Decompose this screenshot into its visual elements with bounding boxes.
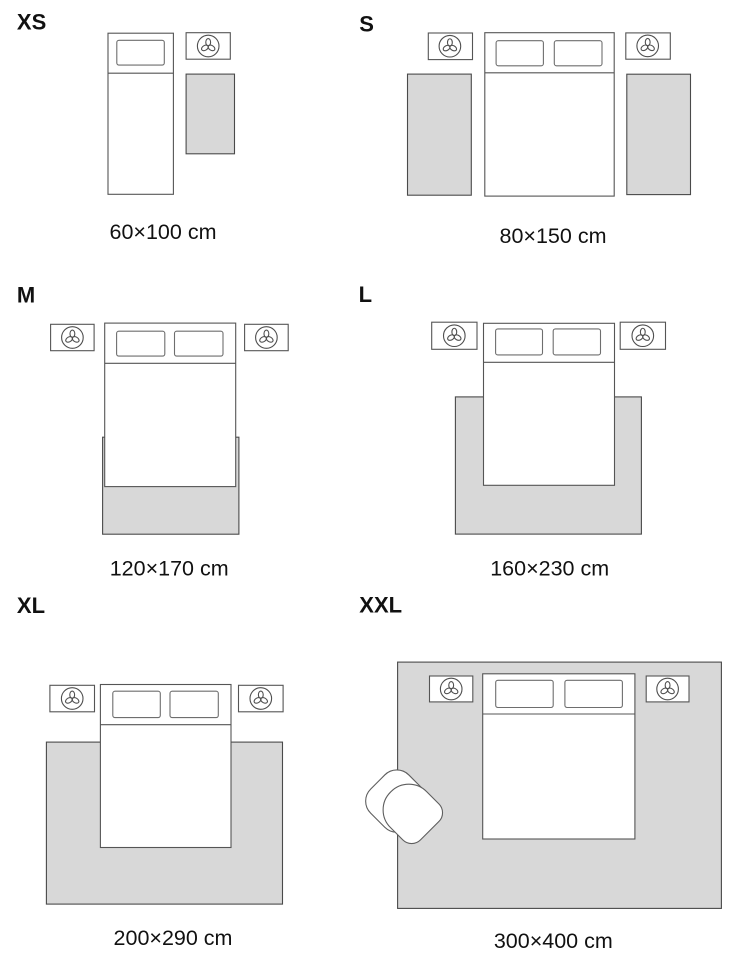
svg-text:XL: XL [17,593,45,618]
svg-text:200×290 cm: 200×290 cm [114,926,233,950]
svg-text:120×170 cm: 120×170 cm [110,556,229,580]
svg-text:L: L [359,282,372,307]
svg-text:XXL: XXL [359,593,402,618]
svg-text:300×400 cm: 300×400 cm [494,929,613,953]
svg-text:XS: XS [17,9,46,34]
svg-text:160×230 cm: 160×230 cm [490,556,609,580]
svg-text:60×100 cm: 60×100 cm [110,220,217,244]
svg-text:80×150 cm: 80×150 cm [500,224,607,248]
svg-text:M: M [17,283,35,308]
svg-text:S: S [359,12,374,37]
